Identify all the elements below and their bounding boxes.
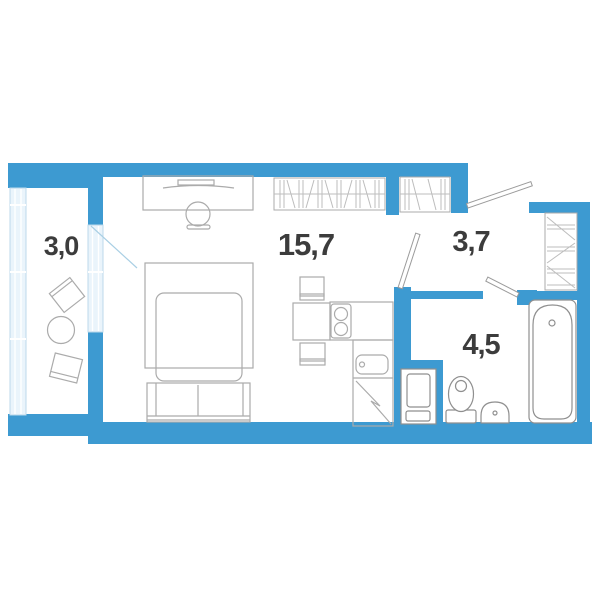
living-room-furniture — [143, 176, 253, 422]
wall-hall-bath-left — [411, 291, 483, 299]
desk-edge — [163, 186, 234, 189]
hall-closet-hatch — [547, 217, 575, 288]
wardrobe-hatch — [274, 180, 385, 208]
washing-machine-door — [407, 374, 430, 407]
bathroom-door-leaf — [486, 277, 519, 297]
bed — [145, 263, 253, 368]
kitchen-chair-top — [300, 277, 324, 296]
wall-hall-bath-right — [517, 291, 590, 300]
kitchen — [293, 277, 393, 426]
floor-plan-drawing — [0, 0, 600, 600]
wall-right — [577, 202, 590, 444]
desk-chair-base — [187, 225, 210, 229]
wall-balcony-partition-lower — [88, 332, 103, 427]
wall-bottom — [88, 422, 592, 444]
wall-washer-niche-right — [436, 360, 443, 426]
balcony-table — [48, 317, 75, 344]
wall-top-facade — [88, 163, 468, 177]
washing-machine-drawer — [406, 411, 430, 421]
stove-burner-2 — [335, 323, 348, 336]
wall-room-hall-upper — [386, 163, 399, 215]
wash-basin-drain — [493, 411, 497, 415]
desk — [143, 176, 253, 210]
balcony-chair-1 — [49, 278, 84, 313]
balcony-furniture — [48, 278, 85, 383]
balcony-area-label: 3,0 — [28, 233, 94, 260]
wall-entry-stub — [451, 163, 468, 213]
kitchen-table — [293, 303, 330, 340]
wall-kitchen-bath — [394, 287, 411, 363]
kitchen-sink-drain — [360, 362, 365, 367]
glazing — [10, 188, 137, 415]
kitchen-chair-top-back — [300, 294, 324, 300]
balcony-chair-2 — [50, 353, 83, 383]
desk-chair — [186, 202, 210, 226]
fridge-symbol — [356, 381, 391, 424]
kitchen-counter-column — [353, 340, 393, 426]
bathroom-area-label: 4,5 — [450, 331, 512, 360]
bathtub-drain — [549, 320, 555, 326]
small-wardrobe-hatch — [400, 179, 450, 210]
entrance-door-leaf — [467, 182, 533, 208]
floor-plan: 3,0 15,7 3,7 4,5 — [0, 0, 600, 600]
balcony-window-band — [10, 188, 26, 415]
wall-balcony-partition-upper — [88, 163, 103, 225]
stove-burner-1 — [335, 308, 348, 321]
hallway-area-label: 3,7 — [440, 228, 502, 257]
wall-washer-niche-left — [394, 360, 401, 426]
kitchen-chair-bottom-back — [300, 359, 325, 365]
monitor — [178, 180, 214, 185]
kitchen-sink — [356, 355, 388, 374]
kitchen-chair-bottom — [300, 343, 325, 361]
living-room-area-label: 15,7 — [264, 229, 348, 260]
room-door-leaf — [398, 233, 420, 289]
toilet-flush — [456, 381, 467, 392]
sofa-cushion-lines — [147, 383, 250, 420]
